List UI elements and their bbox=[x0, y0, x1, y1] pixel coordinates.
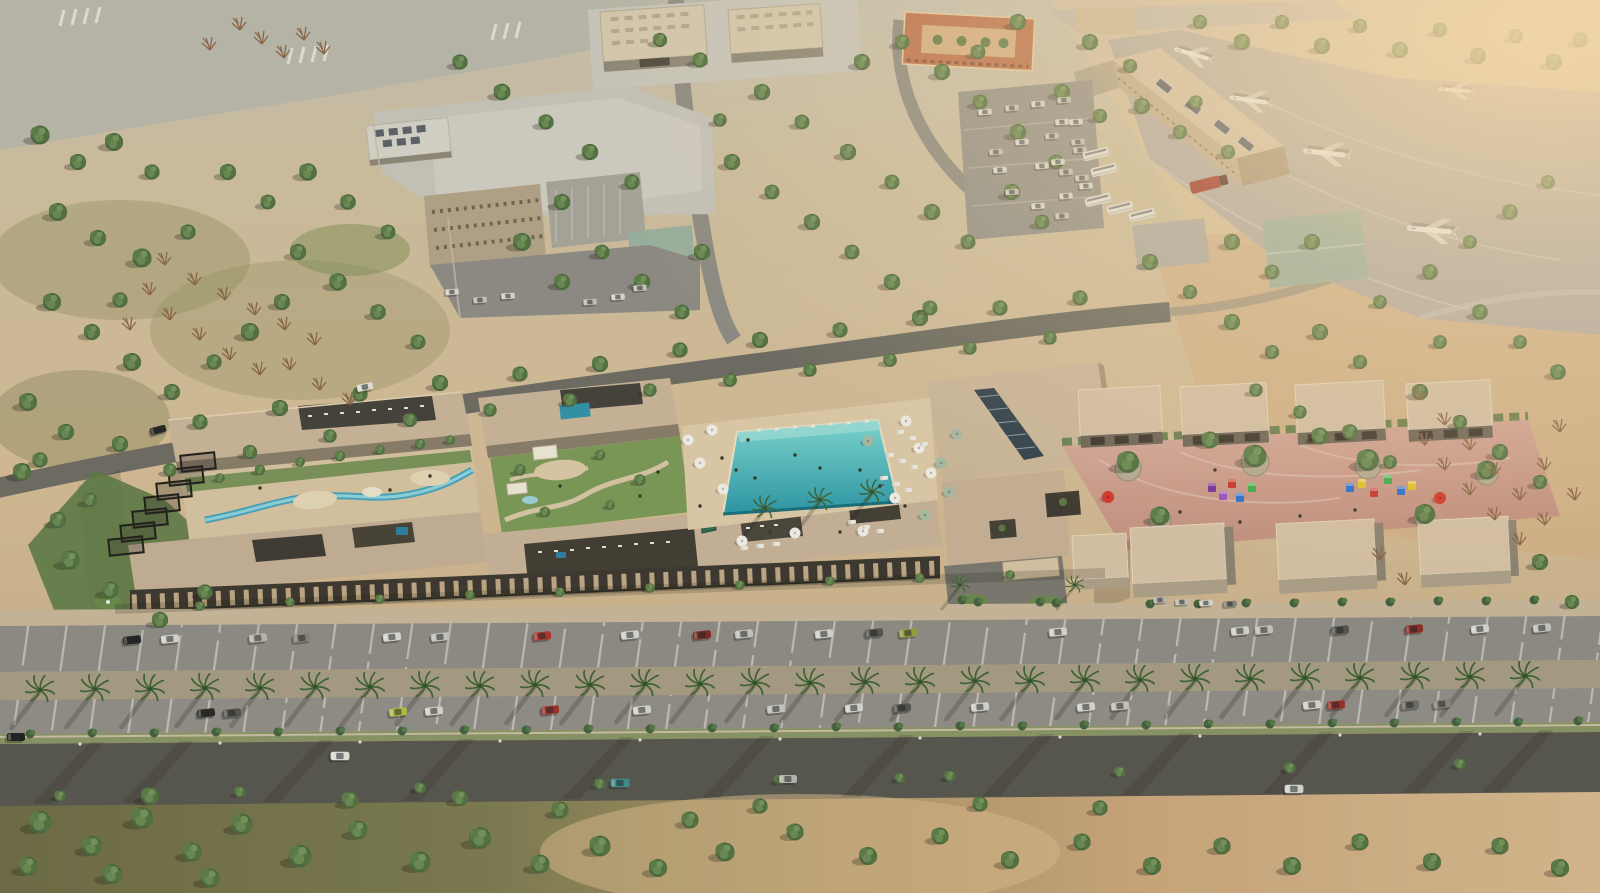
aerial-render-canvas bbox=[0, 0, 1600, 893]
atmosphere bbox=[0, 0, 1600, 893]
aerial-render bbox=[0, 0, 1600, 893]
cool-wash bbox=[0, 0, 1600, 893]
